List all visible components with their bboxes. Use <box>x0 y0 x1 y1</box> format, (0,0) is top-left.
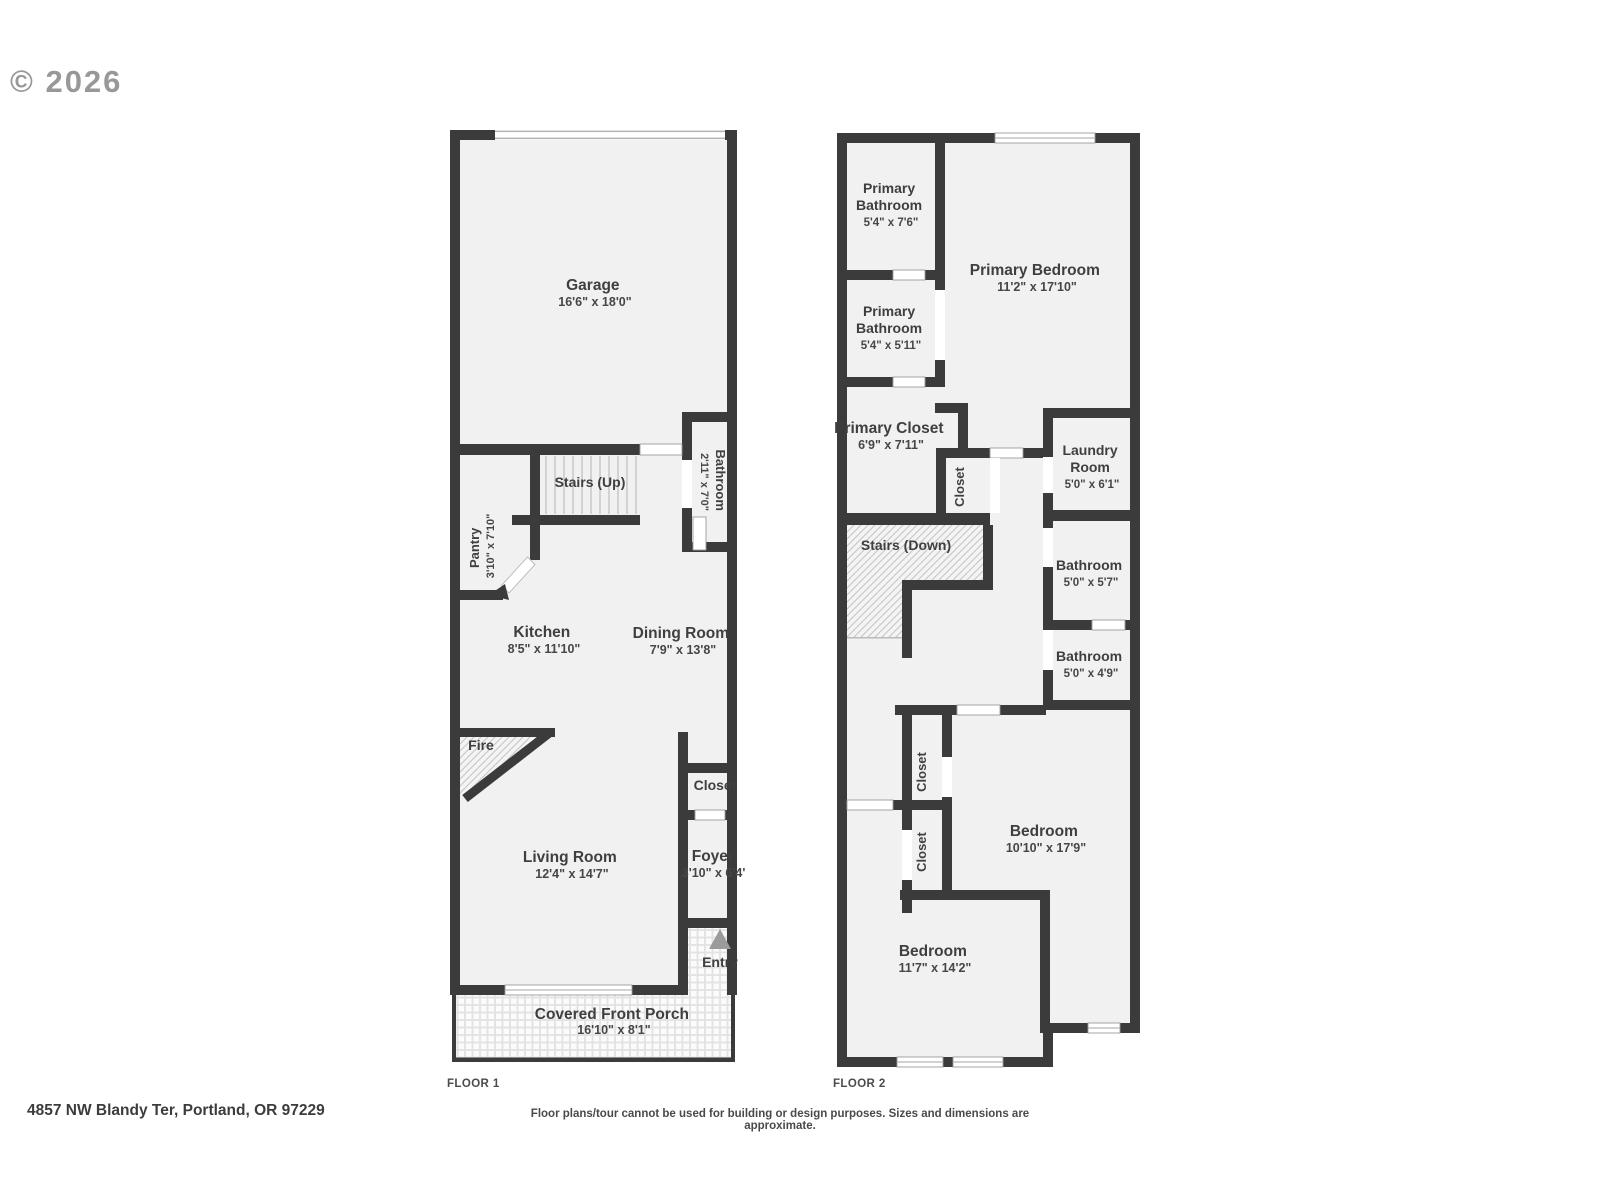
floorplan-page: { "copyright": "© 2026", "colors": { "wa… <box>0 0 1600 1200</box>
primary-bathroom1-label: Primary Bathroom 5'4" x 7'6" <box>856 180 926 229</box>
property-address: 4857 NW Blandy Ter, Portland, OR 97229 <box>27 1102 325 1120</box>
foyer-label: Foyer 3'10" x 6'4" <box>682 848 745 880</box>
primary-bathroom2-label: Primary Bathroom 5'4" x 5'11" <box>856 303 926 352</box>
laundry-room-label: Laundry Room 5'0" x 6'1" <box>1062 442 1121 491</box>
bedroom-right-label: Bedroom 10'10" x 17'9" <box>1006 823 1086 855</box>
bathroom-fixture <box>693 517 706 550</box>
floor1-caption: FLOOR 1 <box>447 1078 500 1090</box>
hall-closet-label: Closet <box>952 466 967 506</box>
fireplace-label: Fire <box>468 737 494 753</box>
disclaimer-text: Floor plans/tour cannot be used for buil… <box>500 1108 1060 1132</box>
entry-label: Entry <box>702 954 738 970</box>
living-room-label: Living Room 12'4" x 14'7" <box>523 849 621 881</box>
garage-label: Garage 16'6" x 18'0" <box>558 277 631 309</box>
stairs-down-label: Stairs (Down) <box>861 537 951 553</box>
floor2-caption: FLOOR 2 <box>833 1078 886 1090</box>
bedroom-bottom-label: Bedroom 11'7" x 14'2" <box>899 943 972 975</box>
copyright-watermark: © 2026 <box>10 64 122 100</box>
stairs-up-label: Stairs (Up) <box>555 474 626 490</box>
kitchen-label: Kitchen 8'5" x 11'10" <box>508 624 581 656</box>
closet2-label: Closet <box>914 831 929 871</box>
closet1-label: Closet <box>914 751 929 791</box>
floor2-plan: Primary Bathroom 5'4" x 7'6" Primary Bat… <box>815 125 1150 1070</box>
floor1-plan: Garage 16'6" x 18'0" Stairs (Up) Pantry … <box>445 125 745 1070</box>
closet-f1-label: Closet <box>694 777 737 793</box>
